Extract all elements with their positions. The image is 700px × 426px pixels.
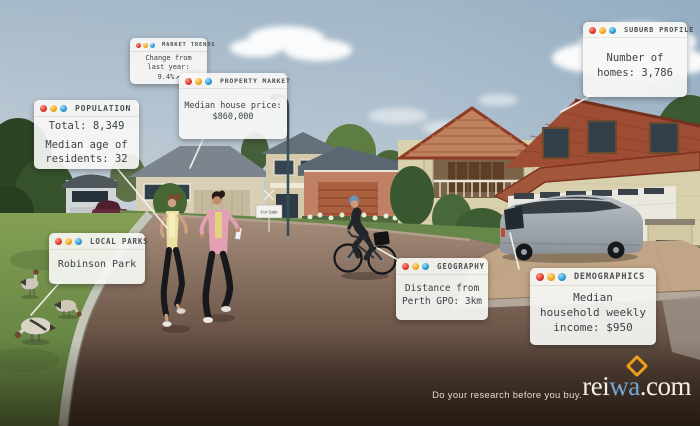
window-dot-yellow-icon	[547, 273, 555, 281]
window-dot-red-icon	[55, 238, 62, 245]
window-dot-yellow-icon	[599, 27, 606, 34]
callout-body: Total: 8,349 Median age of residents: 32	[34, 117, 139, 173]
window-dot-yellow-icon	[143, 43, 148, 48]
callout-header: LOCAL PARKS	[49, 233, 145, 250]
callout-header: POPULATION	[34, 100, 139, 117]
callout-body: Robinson Park	[49, 250, 145, 284]
window-dot-blue-icon	[558, 273, 566, 281]
callout-line: Change from	[135, 54, 202, 63]
callout-title: GEOGRAPHY	[437, 262, 485, 271]
for-sale-sign-text: For Sale	[260, 210, 278, 215]
callout-line: $860,000	[184, 112, 282, 123]
callout-line: Median age of	[39, 138, 134, 152]
callout-line: homes: 3,786	[588, 66, 682, 80]
parked-car-silver	[500, 195, 643, 263]
callout-line: Median	[535, 291, 651, 306]
callout-title: PROPERTY MARKET	[220, 77, 291, 85]
callout-header: PROPERTY MARKET	[179, 73, 287, 89]
window-dot-blue-icon	[205, 78, 212, 85]
callout-geography: GEOGRAPHY Distance from Perth GPO: 3km	[396, 258, 488, 320]
callout-line: residents: 32	[39, 152, 134, 166]
callout-header: SUBURB PROFILE	[583, 22, 687, 38]
tagline: Do your research before you buy.	[432, 390, 582, 401]
window-dot-red-icon	[402, 263, 409, 270]
callout-suburb-profile: SUBURB PROFILE Number of homes: 3,786	[583, 22, 687, 97]
callout-population: POPULATION Total: 8,349 Median age of re…	[34, 100, 139, 169]
callout-local-parks: LOCAL PARKS Robinson Park	[49, 233, 145, 284]
reiwa-logo: reiwa.com	[582, 371, 691, 402]
window-dot-blue-icon	[150, 43, 155, 48]
reiwa-advertisement: For Sale	[0, 0, 700, 426]
callout-body: Median household weekly income: $950	[530, 286, 656, 345]
callout-header: MARKET TRENDS	[130, 38, 207, 52]
callout-line: Perth GPO: 3km	[401, 296, 483, 309]
callout-title: LOCAL PARKS	[90, 237, 148, 246]
logo-text-rei: rei	[582, 371, 609, 401]
callout-body: Median house price: $860,000	[179, 89, 287, 139]
callout-header: GEOGRAPHY	[396, 258, 488, 275]
callout-line: Robinson Park	[54, 258, 140, 272]
window-dot-blue-icon	[422, 263, 429, 270]
window-dot-yellow-icon	[50, 105, 57, 112]
callout-line: Total: 8,349	[39, 119, 134, 133]
window-dot-red-icon	[185, 78, 192, 85]
window-dot-red-icon	[40, 105, 47, 112]
callout-demographics: DEMOGRAPHICS Median household weekly inc…	[530, 268, 656, 345]
callout-line: Distance from	[401, 283, 483, 296]
window-dot-blue-icon	[60, 105, 67, 112]
window-dot-red-icon	[589, 27, 596, 34]
callout-property-market: PROPERTY MARKET Median house price: $860…	[179, 73, 287, 139]
callout-line: Number of	[588, 51, 682, 65]
callout-title: DEMOGRAPHICS	[574, 272, 645, 282]
window-dot-blue-icon	[609, 27, 616, 34]
callout-header: DEMOGRAPHICS	[530, 268, 656, 286]
callout-line: income: $950	[535, 321, 651, 336]
window-dot-yellow-icon	[65, 238, 72, 245]
logo-text-com: .com	[640, 371, 691, 401]
window-dot-yellow-icon	[195, 78, 202, 85]
callout-line: household weekly	[535, 306, 651, 321]
callout-line: Median house price:	[184, 101, 282, 112]
callout-body: Number of homes: 3,786	[583, 38, 687, 97]
callout-title: MARKET TRENDS	[162, 42, 215, 48]
callout-title: POPULATION	[75, 104, 131, 113]
window-dot-red-icon	[536, 273, 544, 281]
callout-body: Distance from Perth GPO: 3km	[396, 275, 488, 320]
window-dot-blue-icon	[75, 238, 82, 245]
window-dot-red-icon	[136, 43, 141, 48]
window-dot-yellow-icon	[412, 263, 419, 270]
callout-title: SUBURB PROFILE	[624, 26, 694, 34]
